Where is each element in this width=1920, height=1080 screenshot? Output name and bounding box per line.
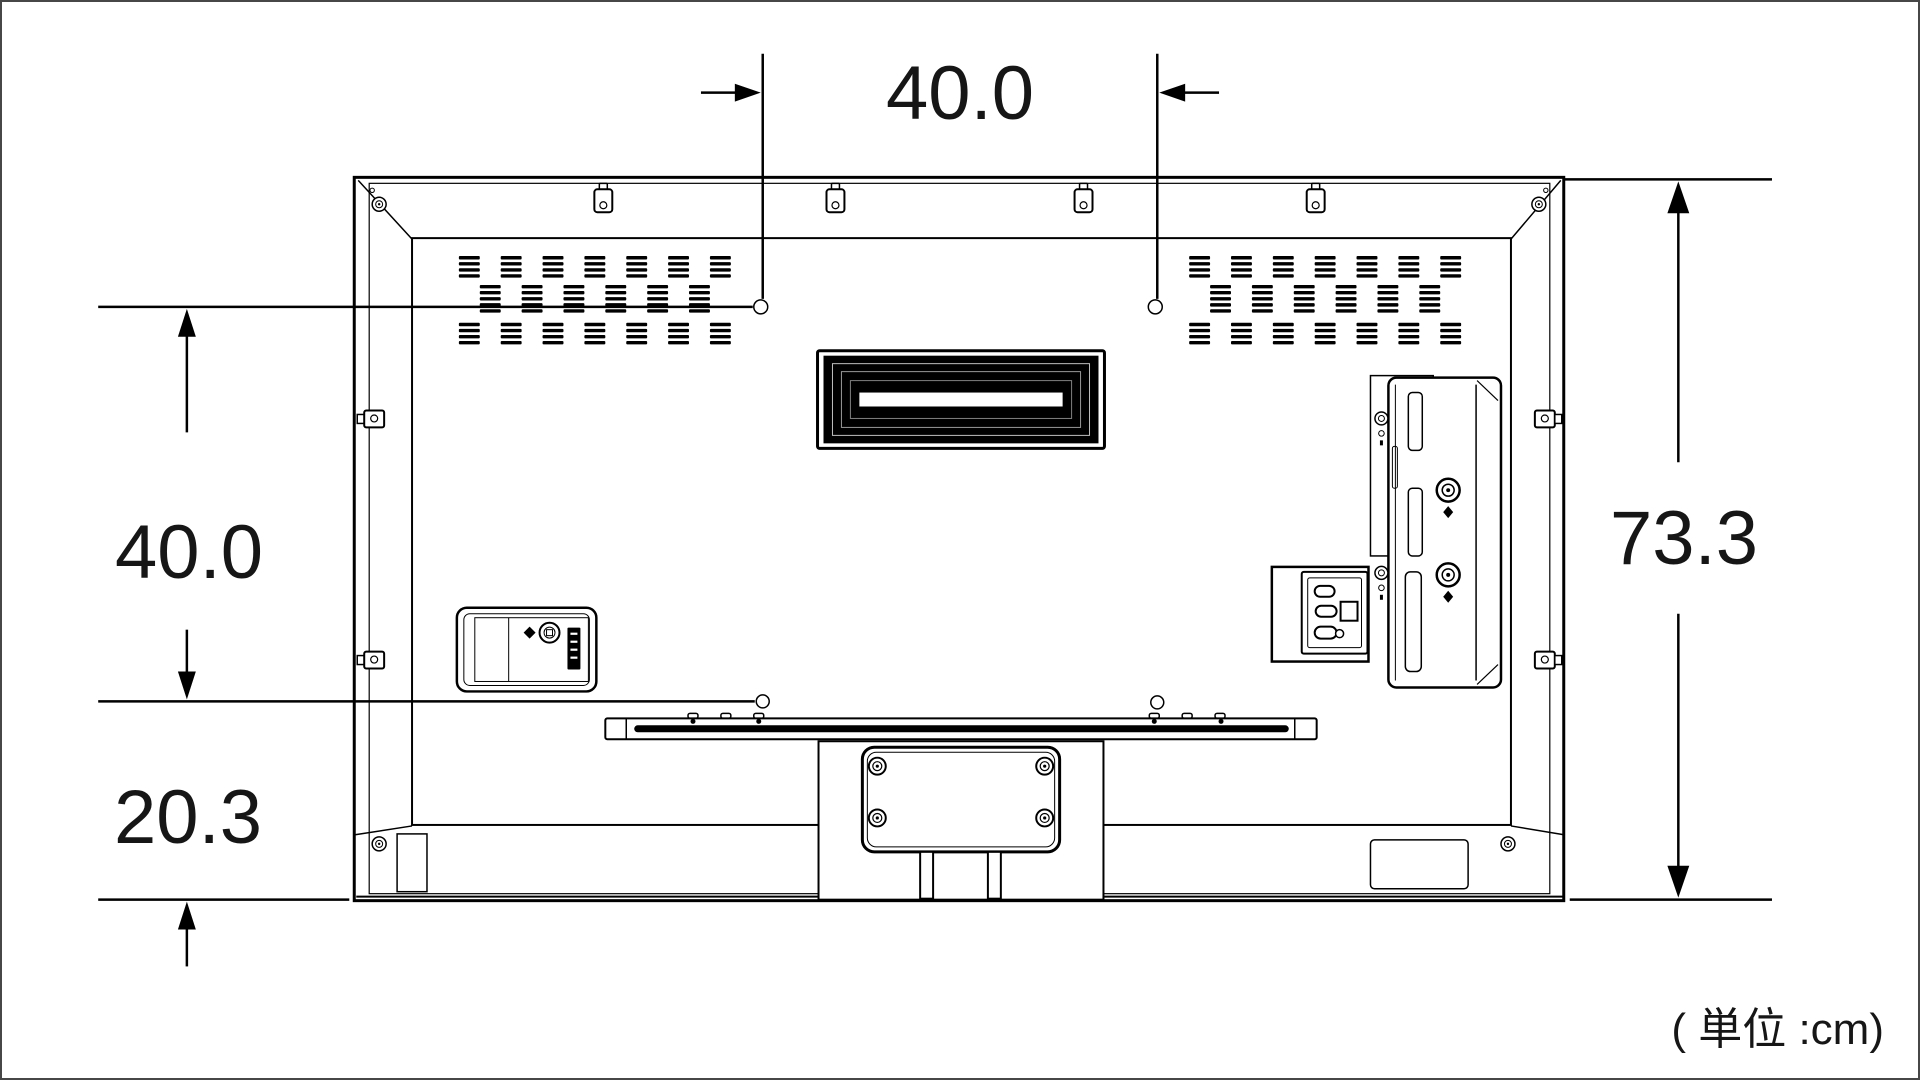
handle-recess	[818, 351, 1105, 449]
corner-screw-icon	[372, 837, 386, 851]
vesa-hole-bottom-left	[756, 695, 769, 708]
connector-slot	[1408, 488, 1422, 556]
stand-mount	[819, 741, 1104, 899]
plate-screw-icon	[869, 809, 886, 826]
dim-width-label: 40.0	[882, 56, 1038, 132]
handle-slot	[858, 392, 1063, 408]
plate-screw-icon	[869, 758, 886, 775]
arrow-up-icon	[1667, 181, 1689, 213]
corner-screw-icon	[1501, 837, 1515, 851]
arrow-down-icon	[1667, 866, 1689, 898]
connector-slot	[1405, 572, 1421, 672]
vesa-plate	[862, 747, 1059, 852]
rating-label-plate	[1370, 840, 1468, 889]
connector-slot	[1408, 393, 1422, 451]
side-connector-panel	[1370, 376, 1501, 688]
bottom-offset-label: 20.3	[110, 780, 266, 856]
indicator-dot	[1336, 630, 1344, 638]
vesa-hole-top-left	[754, 300, 768, 314]
plate-screw-icon	[1036, 809, 1053, 826]
total-height-label: 73.3	[1606, 501, 1762, 577]
arrow-up-icon	[178, 309, 196, 337]
arrow-up-icon	[178, 902, 196, 930]
button-pill	[1315, 586, 1335, 597]
dim-height-label: 40.0	[111, 515, 267, 591]
arrow-down-icon	[178, 672, 196, 700]
diagram-canvas: 40.0 40.0 20.3 73.3 ( 単位 :cm)	[0, 0, 1920, 1080]
ac-inlet-box	[457, 608, 596, 692]
dim-bottom-offset	[98, 900, 349, 967]
plate-screw-icon	[1036, 758, 1053, 775]
bottom-left-slot	[397, 834, 427, 892]
control-button-panel	[1272, 567, 1369, 662]
ac-inlet-label	[567, 628, 580, 670]
vesa-hole-top-right	[1148, 300, 1162, 314]
arrow-right-icon	[735, 84, 761, 102]
arrow-left-icon	[1159, 84, 1185, 102]
button-pill	[1316, 606, 1337, 617]
units-note: ( 単位 :cm)	[1671, 1004, 1884, 1057]
square-port	[1341, 602, 1358, 621]
button-pill	[1315, 627, 1337, 639]
vesa-hole-bottom-right	[1151, 696, 1164, 709]
